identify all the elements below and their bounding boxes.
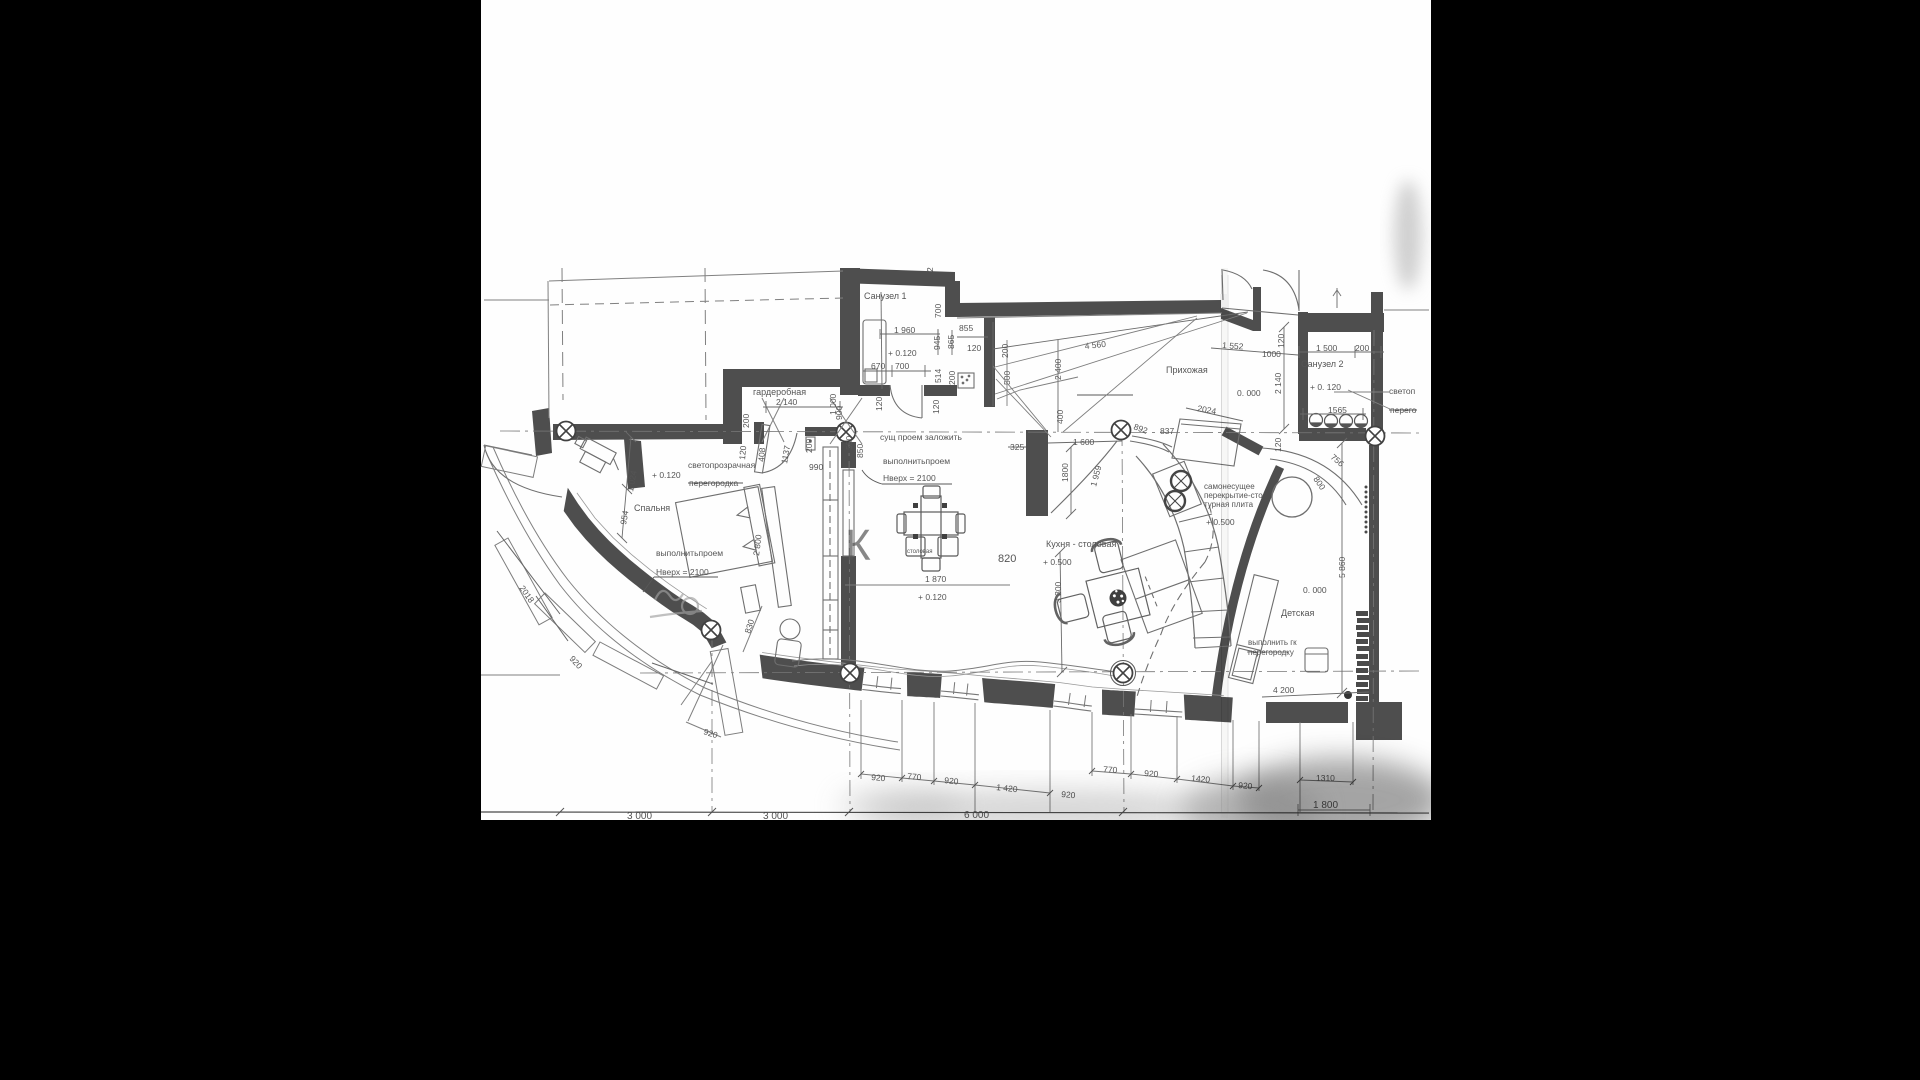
svg-text:столовая: столовая	[907, 549, 933, 555]
svg-text:865: 865	[946, 335, 956, 349]
svg-text:408: 408	[756, 447, 767, 462]
svg-text:2 400: 2 400	[1053, 358, 1063, 380]
svg-text:Нверх = 2100: Нверх = 2100	[656, 567, 709, 577]
svg-text:светоп: светоп	[1389, 386, 1416, 396]
svg-text:4 200: 4 200	[1273, 685, 1295, 695]
svg-text:+ 0.120: + 0.120	[652, 470, 681, 480]
svg-text:1 870: 1 870	[925, 574, 947, 584]
svg-text:0. 000: 0. 000	[1303, 585, 1327, 595]
svg-text:выполнитьпроем: выполнитьпроем	[883, 456, 950, 466]
svg-text:Детская: Детская	[1281, 608, 1314, 618]
svg-text:550: 550	[844, 436, 854, 450]
svg-text:+ 0.500: + 0.500	[1206, 517, 1235, 527]
svg-text:сущ проем заложить: сущ проем заложить	[880, 432, 962, 442]
svg-text:990: 990	[809, 462, 823, 472]
svg-text:5 860: 5 860	[1337, 556, 1347, 578]
svg-text:2: 2	[925, 267, 935, 272]
svg-text:выполнитьпроем: выполнитьпроем	[656, 548, 723, 558]
svg-text:200: 200	[1355, 343, 1369, 353]
svg-text:770: 770	[1103, 764, 1118, 775]
svg-text:2 140: 2 140	[776, 397, 798, 407]
svg-text:турная плита: турная плита	[1204, 500, 1254, 509]
svg-text:светопрозрачная: светопрозрачная	[688, 460, 756, 470]
svg-text:400: 400	[1055, 410, 1065, 424]
svg-text:2 140: 2 140	[1273, 372, 1283, 394]
svg-text:920: 920	[944, 775, 959, 786]
svg-text:0. 000: 0. 000	[1237, 388, 1261, 398]
svg-text:выполнить гк: выполнить гк	[1248, 638, 1297, 647]
svg-text:120: 120	[967, 343, 981, 353]
svg-text:200: 200	[947, 371, 957, 385]
svg-text:770: 770	[907, 771, 922, 782]
svg-text:850: 850	[855, 444, 865, 458]
svg-text:Нверх = 2100: Нверх = 2100	[883, 473, 936, 483]
svg-text:1000: 1000	[1262, 349, 1281, 359]
svg-text:+ 0.500: + 0.500	[1043, 557, 1072, 567]
svg-text:Спальня: Спальня	[634, 503, 670, 513]
svg-text:1 960: 1 960	[894, 325, 916, 335]
svg-text:+ 0. 120: + 0. 120	[1310, 382, 1341, 392]
svg-text:120: 120	[1273, 438, 1283, 452]
svg-text:3 300: 3 300	[1053, 581, 1063, 603]
svg-text:К: К	[845, 521, 871, 570]
svg-text:Санузел 1: Санузел 1	[864, 291, 907, 301]
svg-text:1 600: 1 600	[1073, 437, 1095, 447]
svg-text:Санузел 2: Санузел 2	[1301, 359, 1344, 369]
svg-text:325: 325	[1010, 442, 1024, 452]
svg-text:+ 0.120: + 0.120	[888, 348, 917, 358]
svg-text:+ 0.120: + 0.120	[918, 592, 947, 602]
svg-text:перегородку: перегородку	[1248, 648, 1294, 657]
svg-text:1420: 1420	[1191, 773, 1211, 785]
svg-text:Кухня - столовая: Кухня - столовая	[1046, 539, 1116, 549]
svg-text:гардеробная: гардеробная	[753, 387, 806, 397]
svg-text:120: 120	[737, 445, 748, 460]
svg-text:920: 920	[871, 772, 886, 783]
svg-text:1 552: 1 552	[1222, 340, 1244, 351]
svg-text:700: 700	[895, 361, 909, 371]
svg-text:Прихожая: Прихожая	[1166, 365, 1208, 375]
svg-text:700: 700	[933, 304, 943, 318]
svg-text:920: 920	[1144, 768, 1159, 779]
svg-text:820: 820	[998, 553, 1016, 565]
svg-text:1800: 1800	[1060, 463, 1070, 482]
svg-text:1 500: 1 500	[1316, 343, 1338, 353]
svg-text:855: 855	[959, 323, 973, 333]
svg-text:120: 120	[874, 397, 884, 411]
svg-text:самонесущее: самонесущее	[1204, 482, 1255, 491]
svg-text:670: 670	[871, 361, 885, 371]
svg-text:514: 514	[933, 369, 943, 383]
svg-text:200: 200	[804, 439, 814, 453]
svg-text:945: 945	[932, 336, 942, 350]
svg-text:900: 900	[834, 406, 844, 420]
svg-text:120: 120	[931, 400, 941, 414]
svg-text:1565: 1565	[1328, 405, 1347, 415]
svg-text:120: 120	[1276, 334, 1286, 348]
svg-text:200: 200	[1000, 344, 1010, 358]
svg-text:200: 200	[741, 414, 751, 428]
svg-text:перекрытие-сто: перекрытие-сто	[1204, 491, 1263, 500]
svg-text:837: 837	[1160, 426, 1174, 436]
